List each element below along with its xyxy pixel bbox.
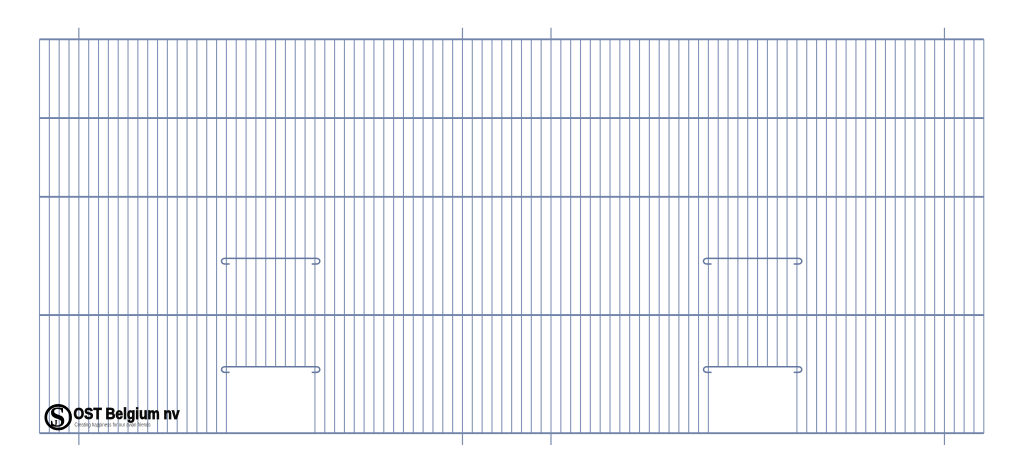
svg-text:OST Belgium nv: OST Belgium nv	[74, 406, 180, 423]
svg-text:Creating happiness for our avi: Creating happiness for our avian friends	[75, 423, 151, 429]
